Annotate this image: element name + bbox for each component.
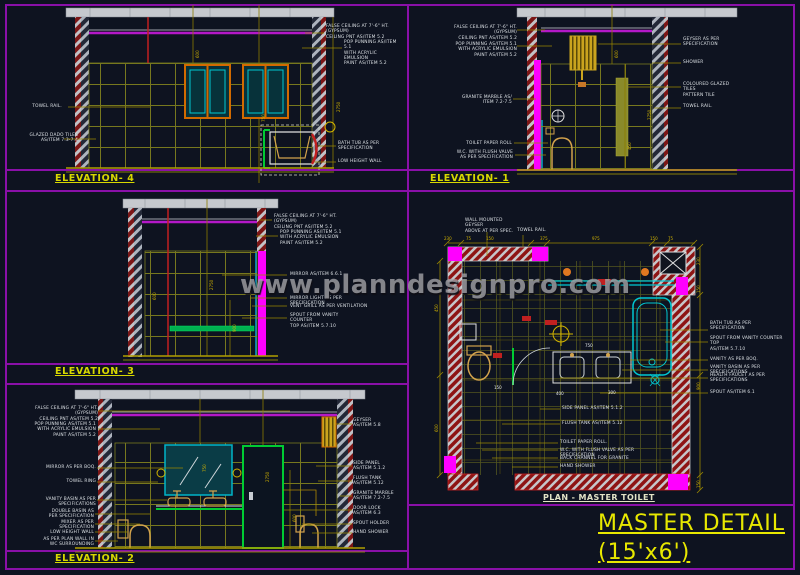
window-1 xyxy=(185,65,230,118)
column-right xyxy=(337,399,348,548)
column-left xyxy=(98,399,103,548)
dim-elevation2: 2750 xyxy=(265,472,270,482)
label-coloured-tiles: COLOURED GLAZED TILES PATTERN TILE xyxy=(683,82,743,98)
dim-elevation1: 2750 xyxy=(647,110,652,120)
cad-sheet: ELEVATION- 4 ELEVATION- 1 ELEVATION- 3 E… xyxy=(0,0,800,575)
panel-title-elevation3: ELEVATION- 3 xyxy=(55,366,134,377)
magenta-strip xyxy=(534,60,541,170)
wall-right xyxy=(672,295,690,475)
dim-right: 150 xyxy=(696,480,701,488)
panel-elevation4-drawing xyxy=(64,5,342,183)
wall-bottom xyxy=(515,474,690,490)
dim-inner: 150 xyxy=(494,385,502,390)
label-hand-shower: HAND SHOWER xyxy=(560,464,620,469)
hand-shower-plan xyxy=(650,374,660,386)
dim-elevation3: 900 xyxy=(232,324,237,332)
mirror xyxy=(165,445,232,495)
label-spout-holder: SPOUT HOLDER xyxy=(353,521,397,526)
column-right xyxy=(257,208,266,252)
magenta-block xyxy=(444,456,456,473)
label-geyser-above: WALL MOUNTED GEYSER ABOVE AT PER SPEC. xyxy=(465,218,521,234)
dim-top: 230 xyxy=(444,236,452,241)
panel-title-elevation1: ELEVATION- 1 xyxy=(430,173,509,184)
ceiling-slab xyxy=(517,8,737,17)
light-point xyxy=(641,268,649,276)
dim-elevation4: 2750 xyxy=(336,102,341,112)
label-spout: SPOUT AS/ITEM 6.1 xyxy=(710,390,770,395)
dim-top: 75 xyxy=(466,236,471,241)
label-false-ceiling: FALSE CEILING AT 7'-6" HT. (GYPSUM) CEIL… xyxy=(326,24,398,40)
panel-title-elevation2: ELEVATION- 2 xyxy=(55,553,134,564)
dim-elevation3: 2750 xyxy=(209,280,214,290)
label-granite-marble: GRANITE MARBLE AS/ITEM 7.2-7.5 xyxy=(353,491,397,502)
label-wc-flush: W.C. WITH FLUSH VALVE AS PER SPECIFICATI… xyxy=(445,150,513,161)
dim-elevation2: 600 xyxy=(292,514,297,522)
tile-grid xyxy=(145,251,257,356)
panel-elevation2-drawing xyxy=(75,390,365,552)
label-pop-punning: POP PUNNING AS/ITEM 5.1 WITH ACRYLIC EMU… xyxy=(32,422,96,438)
label-pop-punning: POP PUNNING AS/ITEM 5.1 WITH ACRYLIC EMU… xyxy=(344,40,398,67)
label-dado-tiles: GLAZED DADO TILES AS/ITEM 7.3-7.4 xyxy=(16,133,78,144)
label-low-height-wall: LOW HEIGHT WALL xyxy=(42,530,94,535)
label-health-faucet: HEALTH FAUCET AS PER SPECIFICATIONS xyxy=(710,373,776,384)
label-vanity-basin: VANITY BASIN AS PER SPECIFICATIONS xyxy=(22,497,96,508)
ceiling-slab xyxy=(66,8,334,17)
label-geyser: GEYSER AS/ITEM 5.8 xyxy=(353,418,397,429)
dim-elevation1: 600 xyxy=(614,50,619,58)
label-towel-rail: TOWEL RAIL. xyxy=(517,228,553,233)
label-bath-tub: BATH TUB AS PER SPECIFICATION xyxy=(710,321,770,332)
label-shower: SHOWER xyxy=(683,60,723,65)
dim-left: 600 xyxy=(434,424,439,432)
column-left xyxy=(128,208,134,357)
label-mirror: MIRROR AS PER BOQ. xyxy=(40,465,96,470)
wall-bottom-left xyxy=(448,474,478,490)
dim-left: 450 xyxy=(434,304,439,312)
dim-inner: 300 xyxy=(608,390,616,395)
label-vanity: VANITY AS PER BOQ. xyxy=(710,357,780,362)
label-hand-shower: HAND SHOWER xyxy=(353,530,397,535)
label-side-panel: SIDE PANEL AS/ITEM 5.1.2 xyxy=(353,461,397,472)
label-toilet-paper: TOILET PAPER ROLL. xyxy=(560,440,640,445)
label-double-basin: DOUBLE BASIN AS PER SPECIFICATION xyxy=(40,509,94,520)
label-spout-counter: SPOUT FROM VANITY COUNTER TOP AS/ITEM 5.… xyxy=(290,313,362,329)
label-door-lock: DOOR LOCK AS/ITEM 6.3 xyxy=(353,506,397,517)
glass-shelf xyxy=(170,326,254,331)
dim-inner: 400 xyxy=(556,391,564,396)
dim-top: 375 xyxy=(540,236,548,241)
ceiling-slab xyxy=(75,390,365,399)
dim-top: 150 xyxy=(486,236,494,241)
mixer-knob xyxy=(325,122,335,132)
dim-elevation4: 600 xyxy=(195,50,200,58)
label-towel-rail: TOWEL RAIL. xyxy=(20,104,62,109)
label-towel-rail: TOWEL RAIL. xyxy=(683,104,723,109)
dim-elevation1: 450 xyxy=(627,142,632,150)
magenta-block xyxy=(668,474,688,490)
column-right xyxy=(652,17,664,170)
magenta-block xyxy=(676,277,688,295)
dim-inner: 750 xyxy=(585,343,593,348)
magenta-block xyxy=(448,247,462,261)
ceiling-slab xyxy=(123,199,278,208)
label-flush-tank: FLUSH TANK AS/ITEM 5.12 xyxy=(353,476,397,487)
label-false-ceiling: FALSE CEILING AT 7'-6" HT. (GYPSUM) CEIL… xyxy=(274,214,344,230)
shaft-box xyxy=(660,252,686,274)
label-granite-marble: GRANITE MARBLE AS/ ITEM 7.2-7.5 xyxy=(450,95,512,106)
label-false-ceiling: FALSE CEILING AT 7'-6" HT. (GYPSUM) CEIL… xyxy=(445,25,517,41)
dim-elevation3: 600 xyxy=(152,292,157,300)
label-plan-wall: AS PER PLAN WALL IN WC SURROUNDING xyxy=(34,537,94,548)
label-low-height-wall: LOW HEIGHT WALL xyxy=(338,159,394,164)
label-vent-grill: VENT GRILL AS PER VENTILATION xyxy=(290,304,368,309)
dim-elevation4: 750 xyxy=(261,114,266,122)
label-side-panel: SIDE PANEL AS/ITEM 5.1.2 xyxy=(562,406,642,411)
label-geyser: GEYSER AS PER SPECIFICATION xyxy=(683,37,739,48)
label-false-ceiling: FALSE CEILING AT 7'-6" HT. (GYPSUM) CEIL… xyxy=(28,406,98,422)
sheet-subtitle: (15'x6') xyxy=(598,540,690,565)
window-2 xyxy=(243,65,288,118)
label-back-channel: BACK CHANNEL FOR GRANITE xyxy=(560,456,650,461)
label-toilet-paper: TOILET PAPER ROLL xyxy=(452,141,512,146)
magenta-strip xyxy=(258,251,266,356)
label-pop-punning: POP PUNNING AS/ITEM 5.1 WITH ACRYLIC EMU… xyxy=(280,230,344,246)
dim-right: 900 xyxy=(696,382,701,390)
geyser xyxy=(322,417,336,447)
label-bath-tub: BATH TUB AS PER SPECIFICATION xyxy=(338,141,394,152)
dim-top: 975 xyxy=(592,236,600,241)
dim-elevation2: 750 xyxy=(202,464,207,472)
watermark: www.planndesignpro.com xyxy=(240,270,631,300)
dim-right: 150 xyxy=(696,285,701,293)
sheet-title: MASTER DETAIL xyxy=(598,511,785,536)
label-spout-counter: SPOUT FROM VANITY COUNTER TOP AS/ITEM 5.… xyxy=(710,336,790,352)
label-flush-tank: FLUSH TANK AS/ITEM 5.12 xyxy=(562,421,642,426)
dim-top: 150 xyxy=(650,236,658,241)
panel-title-elevation4: ELEVATION- 4 xyxy=(55,173,134,184)
dim-top: 75 xyxy=(668,236,673,241)
panel-title-plan: PLAN - MASTER TOILET xyxy=(543,493,655,502)
label-towel-ring: TOWEL RING xyxy=(46,479,96,484)
magenta-block xyxy=(532,247,548,261)
label-pop-punning: POP PUNNING AS/ITEM 5.1 WITH ACRYLIC EMU… xyxy=(450,42,517,58)
column-left xyxy=(75,17,81,168)
dim-right: 230 xyxy=(696,257,701,265)
